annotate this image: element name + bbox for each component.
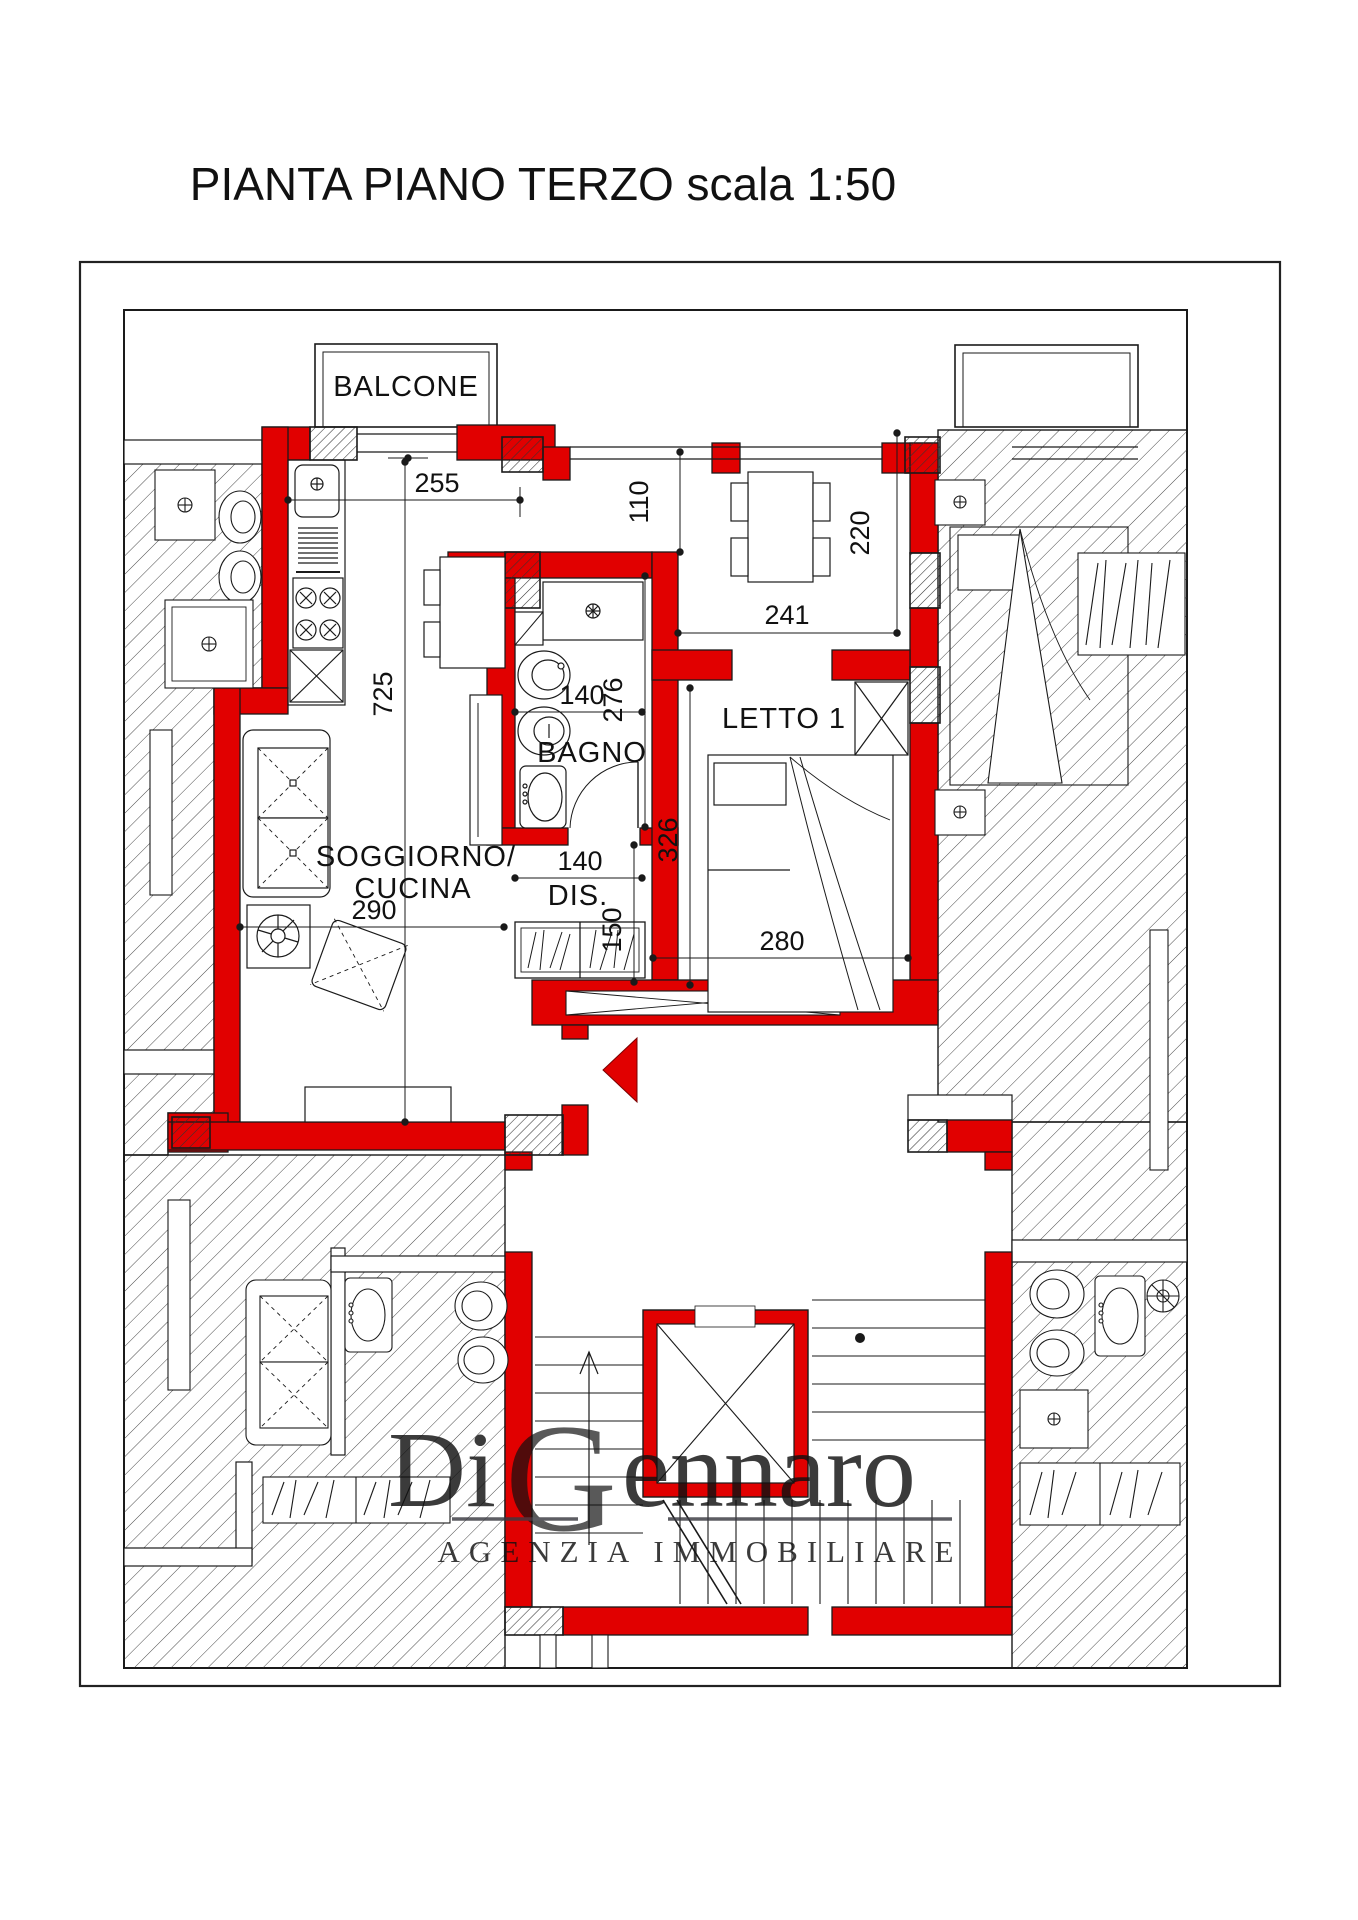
dining-chair	[813, 538, 830, 576]
faucet-icon	[311, 478, 323, 490]
double-bed	[708, 755, 893, 1012]
sideboard	[305, 1087, 451, 1122]
room-label-dis: DIS.	[548, 880, 608, 912]
dim-label-725: 725	[368, 671, 398, 716]
utility-box	[155, 470, 215, 540]
dim-label-276: 276	[598, 677, 628, 722]
dim-label-220: 220	[845, 510, 875, 555]
dim-label-280: 280	[759, 926, 804, 956]
pillow	[714, 763, 786, 805]
dining-chair	[731, 483, 748, 521]
elevator-door	[695, 1306, 755, 1327]
stair-landing-dot	[855, 1333, 865, 1343]
neighbor-wardrobe	[1078, 553, 1185, 655]
shelf	[1150, 930, 1168, 1170]
dining-table	[748, 472, 813, 582]
bathroom-sink	[1095, 1276, 1145, 1356]
floorplan-canvas: PIANTA PIANO TERZO scala 1:50	[0, 0, 1358, 1920]
letto-wardrobe	[855, 682, 908, 755]
radiator	[150, 730, 172, 895]
shower	[165, 600, 253, 688]
dim-label-326: 326	[653, 817, 683, 862]
room-label-soggiorno: SOGGIORNO/	[316, 841, 516, 873]
radiator	[168, 1200, 190, 1390]
page-title: PIANTA PIANO TERZO scala 1:50	[190, 158, 896, 210]
shower-tray	[543, 582, 643, 640]
bidet	[1030, 1330, 1084, 1376]
closet	[1020, 1390, 1088, 1448]
dim-label-150: 150	[597, 907, 627, 952]
dim-label-140-dis: 140	[557, 846, 602, 876]
toilet	[455, 1282, 507, 1330]
tv-cabinet	[470, 695, 502, 845]
watermark-brand-rest: ennaro	[622, 1411, 916, 1530]
dim-label-255: 255	[414, 468, 459, 498]
room-label-letto1: LETTO 1	[722, 703, 846, 735]
bidet	[458, 1337, 508, 1383]
watermark-brand-di: Di	[388, 1411, 496, 1530]
nightstand	[935, 790, 985, 835]
sofa	[246, 1280, 331, 1445]
dining-chair	[813, 483, 830, 521]
corner-marker	[515, 612, 543, 645]
watermark: Di G ennaro AGENZIA IMMOBILIARE	[388, 1392, 962, 1569]
bathroom-sink	[345, 1278, 392, 1352]
room-label-balcone: BALCONE	[333, 371, 479, 403]
armchair	[247, 905, 310, 968]
dining-chair	[731, 538, 748, 576]
toilet	[1030, 1270, 1084, 1318]
room-label-cucina: CUCINA	[354, 873, 471, 905]
extractor-fan	[1147, 1280, 1179, 1312]
room-label-bagno: BAGNO	[537, 737, 647, 769]
neighbor-wardrobe	[1020, 1463, 1180, 1525]
floorplan-page: PIANTA PIANO TERZO scala 1:50	[0, 0, 1358, 1920]
bathroom-sink	[520, 766, 566, 828]
watermark-tagline: AGENZIA IMMOBILIARE	[438, 1534, 963, 1569]
dim-label-110: 110	[624, 480, 654, 523]
nightstand	[935, 480, 985, 525]
dim-label-241: 241	[764, 600, 809, 630]
balcony-right	[955, 345, 1138, 427]
